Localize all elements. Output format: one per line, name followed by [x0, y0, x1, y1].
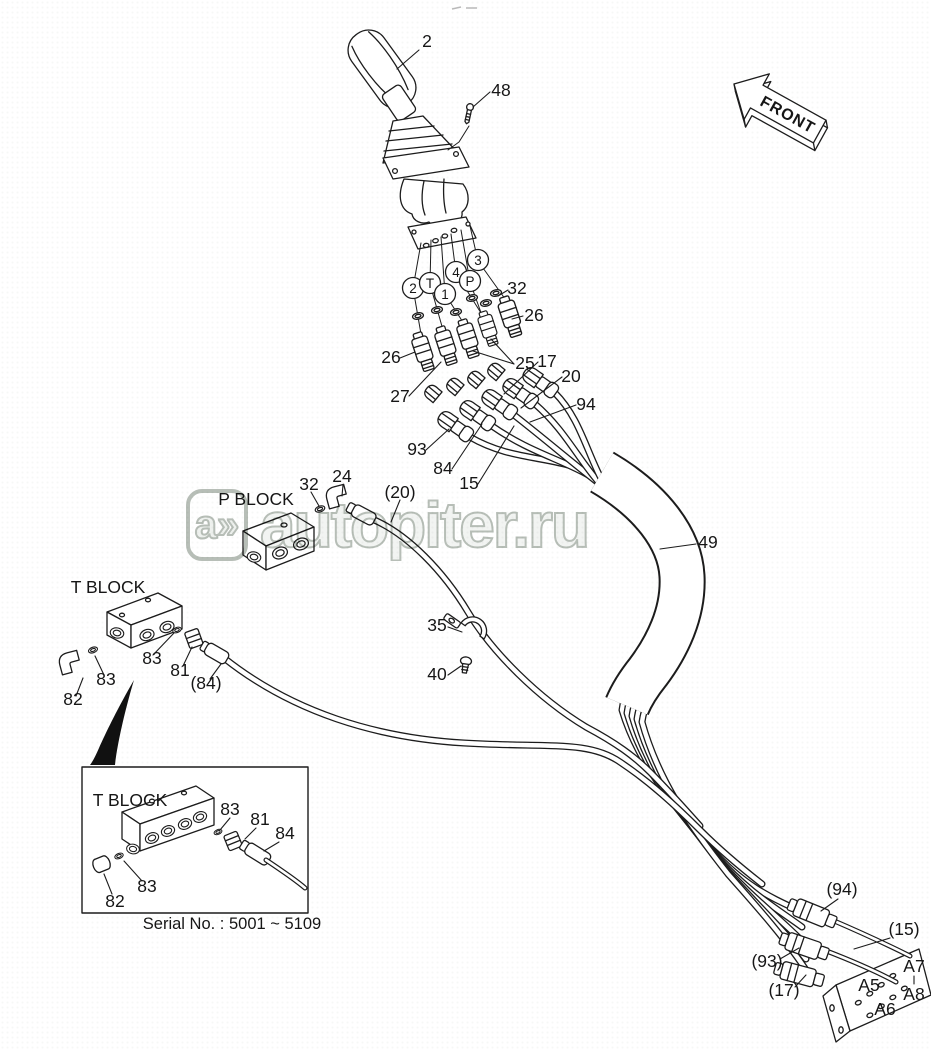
callout-15-ref: (15) — [888, 919, 919, 939]
t-oring-83-left — [88, 646, 99, 654]
callout-a8: A8 — [903, 984, 924, 1004]
inset-t-block-title: T BLOCK — [93, 790, 168, 810]
callout-17: 17 — [537, 351, 556, 371]
t-block — [107, 593, 182, 648]
callout-17-ref: (17) — [768, 980, 799, 1000]
callout-a6: A6 — [874, 999, 895, 1019]
t-elbow-82 — [57, 650, 81, 674]
callout-a7: A7 — [903, 956, 924, 976]
callout-81-t: 81 — [170, 660, 189, 680]
callout-83-i-bot: 83 — [137, 876, 156, 896]
parts-diagram-page: FRONT — [0, 0, 931, 1051]
callout-82-i: 82 — [105, 891, 124, 911]
t-fitting-81 — [184, 628, 203, 649]
port-marker-1: 1 — [441, 287, 449, 302]
t-block-title: T BLOCK — [71, 577, 146, 597]
joystick-assembly — [341, 22, 475, 226]
t-hose-ferrule-84 — [199, 639, 231, 665]
callout-32-p: 32 — [299, 474, 318, 494]
callout-32-top: 32 — [507, 278, 526, 298]
callout-48: 48 — [491, 80, 510, 100]
callout-94: 94 — [576, 394, 596, 414]
port-marker-4: 4 — [452, 265, 460, 280]
callout-15: 15 — [459, 473, 478, 493]
port-marker-p: P — [465, 274, 474, 289]
callout-20-ref: (20) — [384, 482, 415, 502]
callout-83-i-top: 83 — [220, 799, 239, 819]
callout-20: 20 — [561, 366, 581, 386]
callout-94-ref: (94) — [826, 879, 857, 899]
callout-93: 93 — [407, 439, 426, 459]
callout-24: 24 — [332, 466, 352, 486]
callout-2: 2 — [422, 31, 432, 51]
bolt-40 — [459, 656, 472, 673]
serial-note: Serial No. : 5001 ~ 5109 — [143, 915, 321, 933]
p-block — [243, 513, 314, 570]
callout-93-ref: (93) — [751, 951, 782, 971]
callout-26-left: 26 — [381, 347, 400, 367]
scan-artifact — [452, 7, 477, 9]
callout-83-t-right: 83 — [142, 648, 161, 668]
callout-35: 35 — [427, 615, 446, 635]
callout-40: 40 — [427, 664, 447, 684]
p-elbow-24 — [324, 484, 348, 508]
callout-84-i: 84 — [275, 823, 295, 843]
port-marker-3: 3 — [474, 253, 482, 268]
callout-26-right: 26 — [524, 305, 543, 325]
front-arrow: FRONT — [718, 61, 836, 162]
detail-pointer-swoosh — [90, 680, 134, 765]
p-hose-ferrule — [345, 501, 378, 527]
callout-83-t-left: 83 — [96, 669, 115, 689]
callout-82-t: 82 — [63, 689, 82, 709]
callout-49: 49 — [698, 532, 717, 552]
callout-81-i: 81 — [250, 809, 269, 829]
port-marker-t: T — [426, 276, 434, 291]
callout-84-ref: (84) — [190, 673, 221, 693]
p-block-title: P BLOCK — [218, 489, 294, 509]
callout-84: 84 — [433, 458, 453, 478]
port-marker-2: 2 — [409, 281, 417, 296]
screw-48 — [463, 103, 474, 124]
callout-25: 25 — [515, 353, 534, 373]
callout-27: 27 — [390, 386, 409, 406]
diagram-canvas: FRONT — [0, 0, 931, 1051]
callout-a5: A5 — [858, 975, 879, 995]
sleeve-wrap — [602, 472, 682, 706]
p-oring-32 — [314, 505, 325, 514]
